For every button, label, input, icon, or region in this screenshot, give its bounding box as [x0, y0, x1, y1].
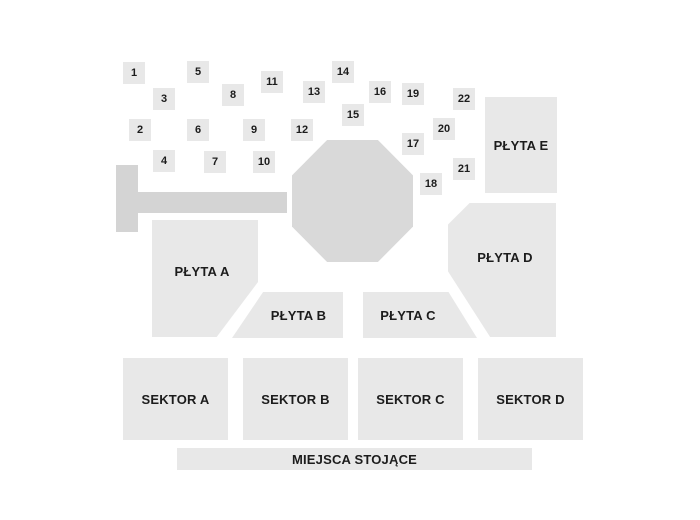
seat-box-label: 21 — [458, 163, 470, 175]
seat-box-label: 10 — [258, 156, 270, 168]
section-label: SEKTOR B — [261, 392, 330, 407]
seat-box-20[interactable]: 20 — [433, 118, 455, 140]
seat-box-2[interactable]: 2 — [129, 119, 151, 141]
seat-box-label: 22 — [458, 93, 470, 105]
venue-seating-map: PŁYTA APŁYTA BPŁYTA CPŁYTA DPŁYTA ESEKTO… — [0, 0, 700, 520]
section-label: PŁYTA B — [271, 308, 327, 323]
seat-box-9[interactable]: 9 — [243, 119, 265, 141]
seat-box-label: 9 — [251, 124, 257, 136]
seat-box-label: 20 — [438, 123, 450, 135]
section-plyta-e[interactable]: PŁYTA E — [485, 97, 557, 193]
seat-box-label: 19 — [407, 88, 419, 100]
seat-box-label: 14 — [337, 66, 349, 78]
stage-octagon — [292, 140, 413, 262]
seat-box-15[interactable]: 15 — [342, 104, 364, 126]
seat-box-3[interactable]: 3 — [153, 88, 175, 110]
seat-box-label: 13 — [308, 86, 320, 98]
seat-box-label: 7 — [212, 156, 218, 168]
seat-box-13[interactable]: 13 — [303, 81, 325, 103]
seat-box-18[interactable]: 18 — [420, 173, 442, 195]
seat-box-5[interactable]: 5 — [187, 61, 209, 83]
section-sektor-b[interactable]: SEKTOR B — [243, 358, 348, 440]
seat-box-7[interactable]: 7 — [204, 151, 226, 173]
seat-box-label: 12 — [296, 124, 308, 136]
seat-box-14[interactable]: 14 — [332, 61, 354, 83]
section-sektor-a[interactable]: SEKTOR A — [123, 358, 228, 440]
section-label: PŁYTA C — [380, 308, 436, 323]
seat-box-4[interactable]: 4 — [153, 150, 175, 172]
section-plyta-b[interactable]: PŁYTA B — [232, 292, 343, 338]
section-plyta-c[interactable]: PŁYTA C — [363, 292, 477, 338]
seat-box-10[interactable]: 10 — [253, 151, 275, 173]
section-label: SEKTOR A — [141, 392, 209, 407]
seat-box-label: 17 — [407, 138, 419, 150]
section-miejsca-stojace[interactable]: MIEJSCA STOJĄCE — [177, 448, 532, 470]
seat-box-label: 6 — [195, 124, 201, 136]
seat-box-label: 4 — [161, 155, 167, 167]
seat-box-label: 8 — [230, 89, 236, 101]
section-label: PŁYTA E — [494, 138, 549, 153]
section-label: SEKTOR C — [376, 392, 445, 407]
seat-box-12[interactable]: 12 — [291, 119, 313, 141]
seat-box-17[interactable]: 17 — [402, 133, 424, 155]
section-sektor-c[interactable]: SEKTOR C — [358, 358, 463, 440]
seat-box-label: 3 — [161, 93, 167, 105]
seat-box-label: 2 — [137, 124, 143, 136]
seat-box-label: 1 — [131, 67, 137, 79]
section-plyta-d[interactable]: PŁYTA D — [448, 203, 556, 337]
seat-box-1[interactable]: 1 — [123, 62, 145, 84]
seat-box-label: 5 — [195, 66, 201, 78]
section-label: PŁYTA D — [477, 250, 533, 265]
section-plyta-a[interactable]: PŁYTA A — [152, 220, 258, 337]
seat-box-21[interactable]: 21 — [453, 158, 475, 180]
section-label: SEKTOR D — [496, 392, 565, 407]
runway-vertical-bar — [116, 165, 138, 232]
seat-box-22[interactable]: 22 — [453, 88, 475, 110]
section-label: PŁYTA A — [174, 264, 229, 279]
seat-box-6[interactable]: 6 — [187, 119, 209, 141]
section-label: MIEJSCA STOJĄCE — [292, 452, 417, 467]
seat-box-8[interactable]: 8 — [222, 84, 244, 106]
seat-box-label: 11 — [266, 76, 278, 88]
seat-box-16[interactable]: 16 — [369, 81, 391, 103]
seat-box-label: 16 — [374, 86, 386, 98]
seat-box-label: 18 — [425, 178, 437, 190]
section-sektor-d[interactable]: SEKTOR D — [478, 358, 583, 440]
seat-box-label: 15 — [347, 109, 359, 121]
seat-box-19[interactable]: 19 — [402, 83, 424, 105]
runway-horizontal-bar — [138, 192, 287, 213]
seat-box-11[interactable]: 11 — [261, 71, 283, 93]
